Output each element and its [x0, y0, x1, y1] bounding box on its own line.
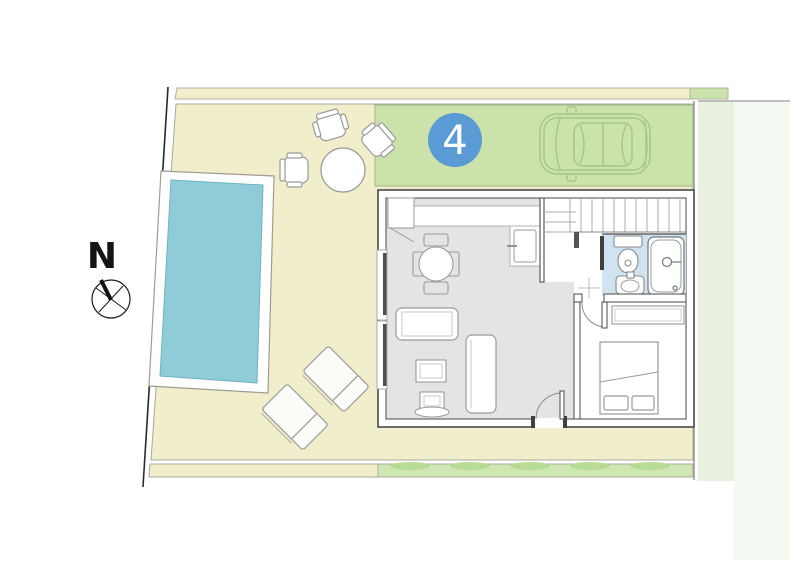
bedroom-wall	[574, 302, 580, 419]
bathtub-icon	[648, 237, 684, 295]
floor-plan-canvas: 4	[0, 0, 800, 565]
bed	[600, 342, 658, 414]
bathroom-wall	[600, 236, 604, 270]
round-table	[321, 148, 365, 192]
sliding-windows	[377, 250, 387, 389]
window-glass	[383, 324, 387, 386]
house	[377, 190, 694, 428]
neighbor-plot-area	[698, 101, 790, 560]
north-label: N	[87, 236, 117, 277]
pillow	[632, 396, 654, 410]
sofa	[396, 308, 458, 340]
bedroom-door-leaf	[602, 302, 607, 328]
swimming-pool	[149, 171, 274, 393]
kitchen-cabinet	[388, 198, 414, 228]
stair-wall-stub	[574, 232, 579, 248]
kitchen-sink	[514, 230, 536, 262]
door-leaf	[560, 391, 564, 419]
pillow	[604, 396, 628, 410]
daybed	[466, 335, 496, 413]
coffee-table	[416, 360, 446, 382]
compass-needle	[101, 280, 111, 300]
pool-water	[160, 180, 263, 383]
top-strip	[175, 88, 728, 99]
compass-icon: N	[87, 236, 130, 318]
site-plan-drawing: 4	[0, 0, 800, 565]
bottom-strip	[149, 462, 693, 477]
tv-unit	[415, 392, 449, 417]
unit-number: 4	[442, 118, 467, 164]
unit-badge: 4	[428, 113, 482, 167]
interior-wall	[540, 198, 544, 282]
bathroom	[600, 234, 686, 296]
window-glass	[383, 253, 387, 315]
